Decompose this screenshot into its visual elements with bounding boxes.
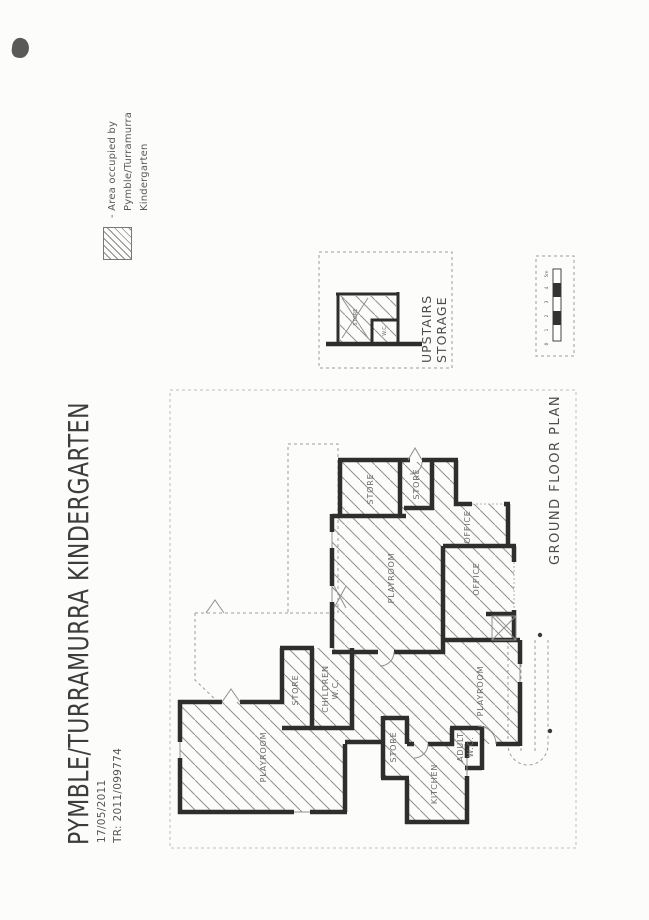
room-label-upstairs-store: STORE — [353, 309, 359, 326]
scale-tick-5m: 5m — [544, 271, 549, 278]
room-label-playroom-center: PLAYROOM — [387, 553, 397, 604]
scale-tick-0: 0 — [544, 343, 549, 346]
room-label-playroom-left: PLAYROOM — [259, 732, 269, 783]
scale-tick-4: 4 — [544, 287, 549, 290]
room-label-store-1: STORE — [366, 474, 376, 505]
scanned-floor-plan-page: PYMBLE/TURRAMURRA KINDERGARTEN 17/05/201… — [0, 0, 649, 920]
upstairs-storage-caption-line-1: UPSTAIRS — [419, 295, 434, 363]
room-label-store-4: STORE — [389, 732, 399, 763]
room-label-store-2: STORE — [412, 469, 422, 500]
room-label-office-2: OFFICE — [472, 562, 482, 595]
room-label-adult-wc: ADULT W.C. — [456, 732, 476, 762]
scale-tick-3: 3 — [544, 301, 549, 304]
room-label-playroom-right: PLAYROOM — [476, 666, 486, 717]
ground-floor-plan-caption: GROUND FLOOR PLAN — [548, 395, 563, 565]
room-label-office-1: OFFICE — [463, 510, 473, 543]
room-label-upstairs-wc: W.C — [382, 326, 388, 336]
room-label-children-wc: CHILDREN W.C. — [321, 665, 341, 713]
room-label-kitchen: KITCHEN — [430, 764, 440, 804]
scale-tick-1: 1 — [544, 329, 549, 332]
scale-tick-2: 2 — [544, 315, 549, 318]
upstairs-storage-caption-line-2: STORAGE — [434, 296, 449, 363]
room-label-store-3: STORE — [291, 675, 301, 706]
